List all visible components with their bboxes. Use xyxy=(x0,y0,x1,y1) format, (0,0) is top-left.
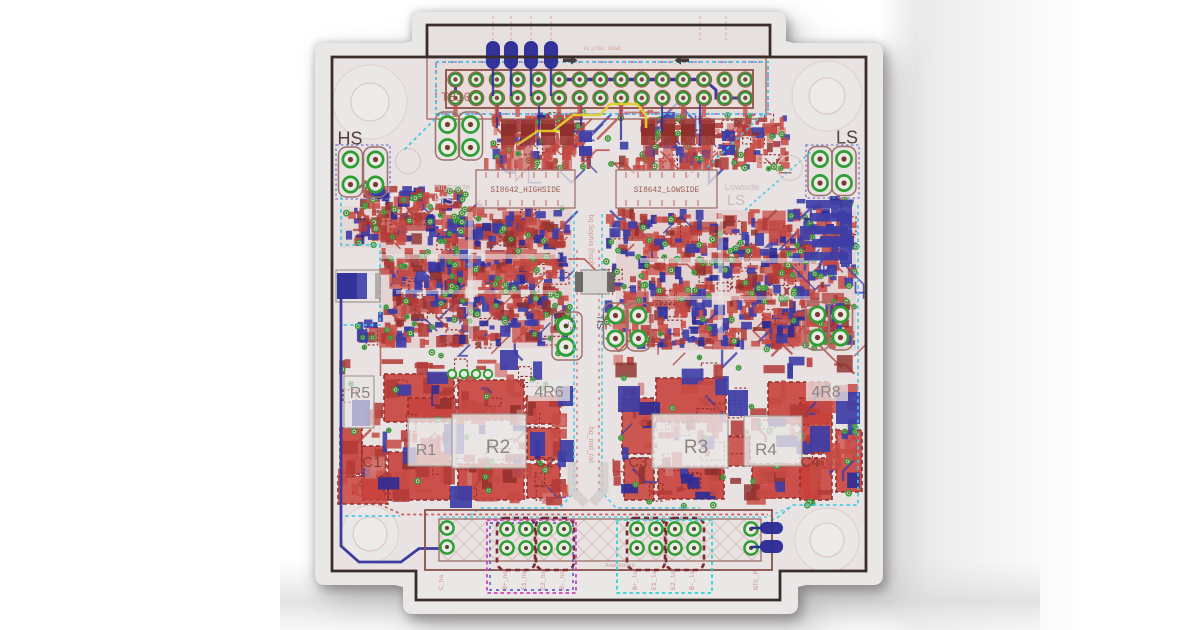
svg-text:NTC_P: NTC_P xyxy=(753,570,760,590)
svg-text:R4: R4 xyxy=(755,440,777,459)
svg-text:C4: C4 xyxy=(800,454,819,471)
svg-text:E1_hs: E1_hs xyxy=(521,570,528,590)
svg-text:C_hs: C_hs xyxy=(438,574,445,590)
svg-text:bq Sophia (hspl): bq Sophia (hspl) xyxy=(587,215,594,266)
svg-text:TB10: TB10 xyxy=(441,91,471,105)
svg-text:R5: R5 xyxy=(350,385,371,402)
svg-text:TIS: TIS xyxy=(595,315,605,329)
svg-text:4R8: 4R8 xyxy=(811,384,840,401)
svg-text:C3: C3 xyxy=(628,454,647,471)
svg-text:4R6: 4R6 xyxy=(534,384,563,401)
svg-text:B+_ls: B+_ls xyxy=(632,570,639,590)
svg-text:LS: LS xyxy=(727,192,745,209)
svg-text:SI8642_HIGHSIDE: SI8642_HIGHSIDE xyxy=(490,187,561,195)
svg-text:H_S: H_S xyxy=(568,317,575,331)
svg-text:C2: C2 xyxy=(535,454,554,471)
svg-text:E1_ls: E1_ls xyxy=(651,570,658,590)
svg-text:C1: C1 xyxy=(362,454,381,471)
svg-text:SI8642_LOWSIDE: SI8642_LOWSIDE xyxy=(634,187,700,195)
svg-text:HS: HS xyxy=(337,129,362,149)
svg-text:LV_CTRL SGND: LV_CTRL SGND xyxy=(583,46,620,52)
svg-text:R2: R2 xyxy=(486,437,510,458)
svg-text:R3: R3 xyxy=(684,437,708,458)
svg-text:E2_ls: E2_ls xyxy=(670,570,677,590)
svg-text:HS: HS xyxy=(434,192,455,209)
svg-text:B+_hs: B+_hs xyxy=(502,570,509,590)
svg-text:bq_mid_rail: bq_mid_rail xyxy=(587,427,594,464)
svg-text:R1: R1 xyxy=(416,442,437,459)
svg-text:RAWGROUND: RAWGROUND xyxy=(605,562,635,569)
svg-text:LS: LS xyxy=(836,128,858,148)
svg-text:B-_ls: B-_ls xyxy=(689,570,696,590)
svg-text:E2_hs: E2_hs xyxy=(540,570,547,590)
svg-text:B-_hs: B-_hs xyxy=(559,570,566,590)
